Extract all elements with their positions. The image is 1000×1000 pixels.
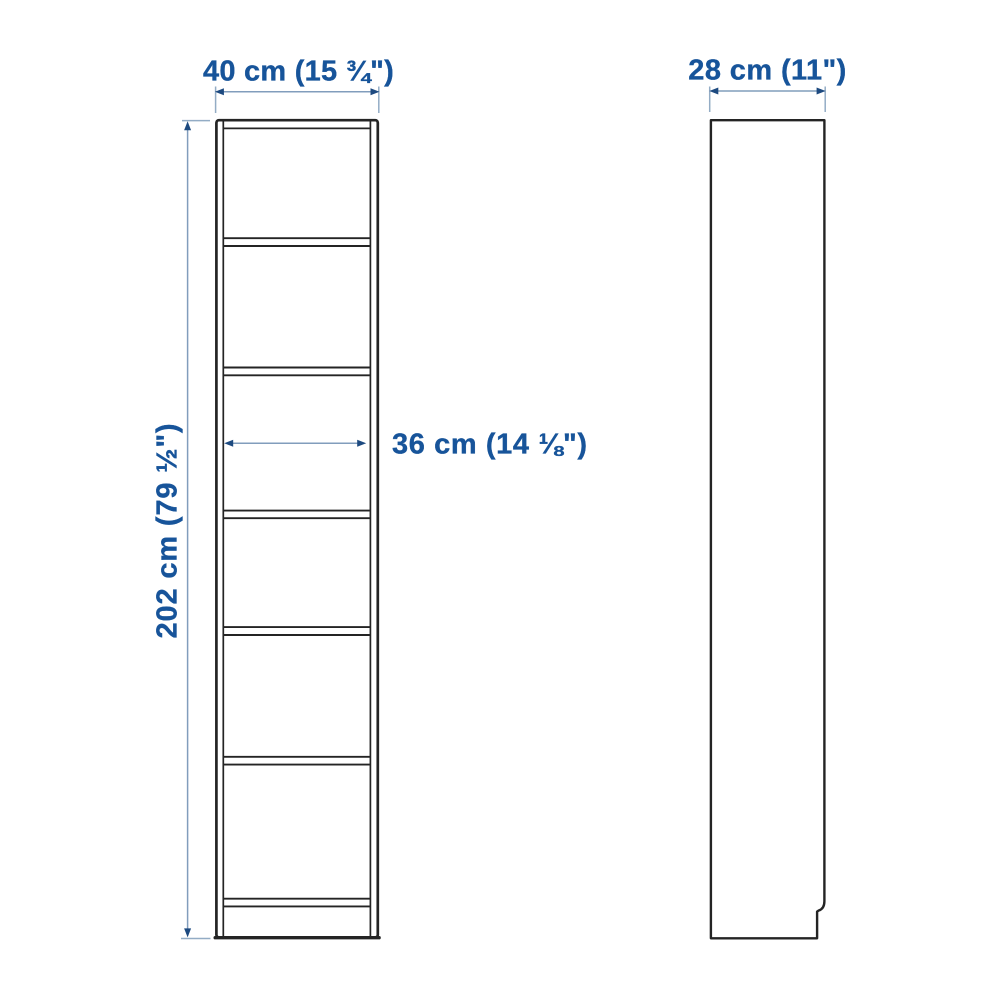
svg-text:202 cm (79 ½"): 202 cm (79 ½"): [152, 423, 184, 639]
svg-text:36 cm (14 ⅛"): 36 cm (14 ⅛"): [392, 429, 588, 461]
svg-text:28 cm (11"): 28 cm (11"): [688, 55, 846, 87]
svg-text:40 cm (15 ¾"): 40 cm (15 ¾"): [203, 56, 394, 88]
